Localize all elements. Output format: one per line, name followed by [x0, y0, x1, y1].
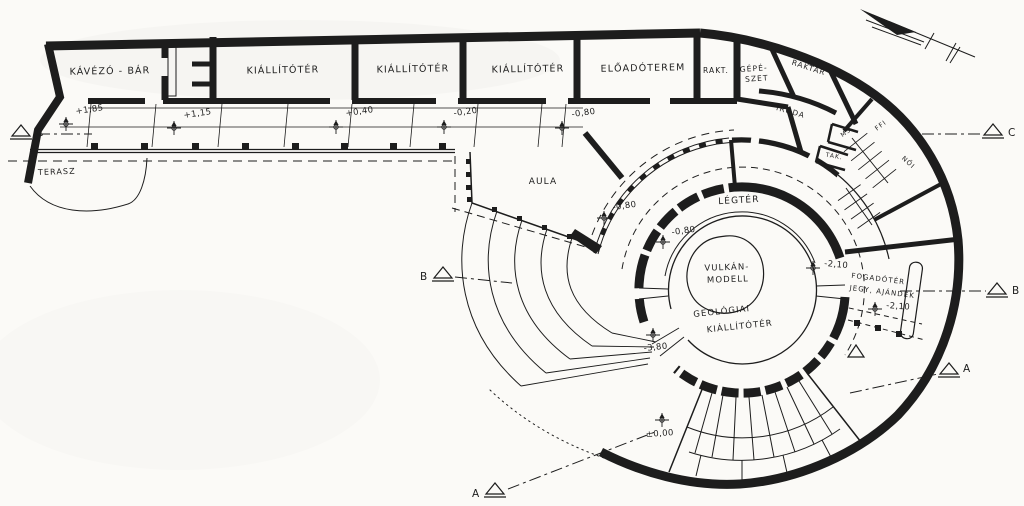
terrace-outline	[30, 158, 147, 211]
section-letter-a-right: A	[963, 363, 971, 375]
level-ring-1: -2,10	[824, 259, 849, 271]
label-reception-1: FOGADÓTÉR	[851, 271, 906, 287]
section-letter-a-bottom: A	[472, 488, 480, 500]
level-entry: ±0,00	[646, 428, 675, 440]
floor-plan-sheet: C C B B A A +1,85 +1,15 +0,40 -0,20 -0,8…	[0, 0, 1024, 506]
level-reception: -2,10	[886, 301, 911, 313]
level-ramp-4: -0,20	[453, 106, 478, 119]
room-label-mechanical-2: SZET	[745, 73, 769, 84]
level-ramp-2: +1,15	[183, 107, 212, 121]
paper-texture	[0, 20, 560, 470]
room-label-exhibit-3: KIÁLLÍTÓTÉR	[491, 62, 564, 75]
section-triangle-a-right	[938, 363, 960, 377]
room-label-exhibit-1: KIÁLLÍTÓTÉR	[246, 63, 319, 76]
amphitheater-ramps	[462, 203, 656, 460]
label-reception-2: JEGY, AJÁNDÉK	[848, 283, 915, 300]
label-terrace: TERASZ	[37, 167, 76, 177]
plain-triangle-marker	[848, 345, 864, 357]
label-atrium: AULA	[529, 177, 558, 187]
section-triangle-c-right	[982, 124, 1004, 138]
level-aula-1: -0,80	[612, 200, 637, 213]
level-ramp-5: -0,80	[571, 107, 596, 120]
room-label-lecture-hall: ELŐADÓTEREM	[600, 61, 685, 74]
room-label-mechanical-1: GÉPÉ-	[740, 63, 769, 74]
aula-facade	[452, 133, 622, 254]
label-air-space: LÉGTÉR	[718, 193, 760, 207]
label-volcano-2: MODELL	[707, 274, 749, 285]
section-letter-b-left: B	[420, 271, 427, 283]
room-label-exhibit-2: KIÁLLÍTÓTÉR	[376, 62, 449, 75]
room-label-storage-small: RAKT.	[703, 66, 729, 75]
section-letter-b-right: B	[1012, 285, 1019, 297]
section-triangle-b-left	[432, 267, 454, 281]
label-geology-2: KIÁLLÍTÓTÉR	[706, 317, 773, 336]
label-geology-1: GEOLÓGIAI	[693, 302, 751, 320]
floor-plan-canvas: C C B B A A +1,85 +1,15 +0,40 -0,20 -0,8…	[0, 0, 1024, 506]
north-arrow-icon	[860, 9, 975, 63]
section-letter-c-left: C	[36, 127, 43, 139]
section-triangle-c-left	[10, 125, 32, 139]
room-label-cafe-bar: KÁVÉZÓ - BÁR	[69, 64, 150, 77]
outer-spiral-wall	[601, 33, 959, 484]
section-triangle-b-right	[986, 283, 1008, 297]
section-triangle-a-bottom	[484, 483, 506, 497]
level-ramp-1: +1,85	[75, 103, 104, 117]
room-label-wc-men: FFI	[873, 118, 888, 132]
room-label-wc-women: NŐI	[900, 154, 917, 171]
label-volcano-1: VULKÁN-	[704, 260, 750, 274]
level-ramp-3: +0,40	[345, 105, 374, 119]
section-letter-c-right: C	[1008, 127, 1015, 139]
